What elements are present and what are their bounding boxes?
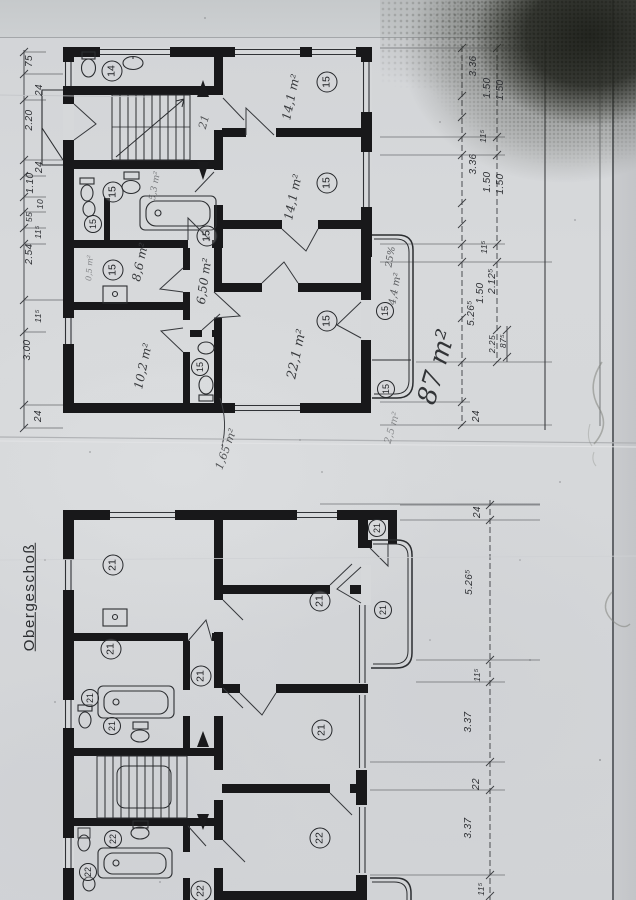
room-number-circle: 21 <box>368 519 386 537</box>
floorplan-linework <box>0 0 636 900</box>
room-number-circle: 15 <box>317 173 338 194</box>
handwritten-note: 21 <box>197 114 211 130</box>
dim-label: 24 <box>35 84 45 96</box>
room-number: 15 <box>85 216 101 232</box>
scanned-floorplan-page: Obergeschoß 14 15 15 15 15 15 15 15 15 1… <box>0 0 636 900</box>
dim-label: 55 <box>25 212 34 222</box>
room-number-circle: 15 <box>317 311 338 332</box>
room-number: 15 <box>192 359 208 375</box>
dim-label: 11⁵ <box>480 240 489 254</box>
room-number-circle: 15 <box>84 215 102 233</box>
room-number-circle: 22 <box>310 828 331 849</box>
dim-label: 1.50 <box>476 282 486 303</box>
top-plan-walls <box>63 47 372 413</box>
dim-label: 3.36 <box>469 55 479 76</box>
top-plan-stairs <box>112 95 190 160</box>
dim-label: 11⁵ <box>34 309 43 323</box>
room-number-circle: 15 <box>103 260 124 281</box>
dim-label: 11⁵ <box>479 129 488 143</box>
dim-label: 3.00 <box>23 339 33 360</box>
room-number-circle: 21 <box>103 717 121 735</box>
dim-label: 11⁵ <box>477 882 486 896</box>
dim-label: 24 <box>35 161 45 173</box>
room-number-circle: 14 <box>102 61 123 82</box>
room-number-circle: 22 <box>79 863 97 881</box>
room-number: 22 <box>192 882 211 900</box>
room-number-circle: 15 <box>317 72 338 93</box>
dim-label: 1.10 <box>26 172 36 193</box>
dim-label: 87⁵ <box>499 334 508 348</box>
room-number-circle: 22 <box>104 830 122 848</box>
room-number: 15 <box>378 381 394 397</box>
room-number: 21 <box>313 721 332 740</box>
room-number: 21 <box>102 640 121 659</box>
room-number-circle: 21 <box>101 639 122 660</box>
dim-label: 1.50 <box>483 77 493 98</box>
room-number: 15 <box>318 312 337 331</box>
room-number-circle: 21 <box>191 666 212 687</box>
room-number: 21 <box>311 592 330 611</box>
bottom-plan-stairs <box>97 756 187 818</box>
room-number: 15 <box>377 303 393 319</box>
room-number: 15 <box>104 183 123 202</box>
top-plan-porch <box>42 90 63 165</box>
dim-label: 10 <box>36 199 45 209</box>
dim-label: 11⁵ <box>473 668 482 682</box>
room-number-circle: 21 <box>310 591 331 612</box>
dim-label: 2.12⁵ <box>488 268 498 294</box>
room-number-circle: 15 <box>377 380 395 398</box>
room-number-circle: 22 <box>191 881 212 900</box>
dim-label: 24 <box>472 410 482 422</box>
pencil-marks <box>588 362 630 627</box>
dim-label: 2.25 <box>488 335 497 353</box>
room-number-circle: 21 <box>81 689 99 707</box>
room-number: 22 <box>311 829 330 848</box>
dim-label: 3.37 <box>464 817 474 838</box>
room-number: 21 <box>192 667 211 686</box>
room-number: 15 <box>198 227 217 246</box>
room-number-circle: 15 <box>191 358 209 376</box>
room-number: 21 <box>104 556 123 575</box>
dim-label: 1.50 <box>496 79 506 100</box>
dim-label: 22 <box>472 778 482 790</box>
room-number-circle: 21 <box>103 555 124 576</box>
dim-label: 5.26⁵ <box>465 569 475 595</box>
bottom-plan-entry-arrows <box>197 731 209 830</box>
dim-label: 1.50 <box>496 173 506 194</box>
room-number: 21 <box>104 718 120 734</box>
room-number: 21 <box>369 520 385 536</box>
dim-label: 5.26⁵ <box>467 300 477 326</box>
dim-label: 24 <box>34 410 44 422</box>
room-number: 15 <box>318 174 337 193</box>
room-number-circle: 15 <box>103 182 124 203</box>
room-number: 22 <box>80 864 96 880</box>
room-number-circle: 15 <box>197 226 218 247</box>
dim-label: 24 <box>473 506 483 518</box>
dim-label: 2.54 <box>25 243 35 264</box>
room-number: 21 <box>375 602 391 618</box>
bottom-plan-balcony <box>370 540 412 900</box>
dim-label: 11⁵ <box>34 225 43 239</box>
dim-label: 75 <box>25 55 35 67</box>
room-number: 22 <box>105 831 121 847</box>
dim-label: 1.50 <box>483 171 493 192</box>
dim-label: 2.20 <box>25 109 35 130</box>
room-number-circle: 21 <box>312 720 333 741</box>
floor-title: Obergeschoß <box>22 543 39 651</box>
room-number: 15 <box>104 261 123 280</box>
room-number: 15 <box>318 73 337 92</box>
room-number-circle: 21 <box>374 601 392 619</box>
room-number: 14 <box>103 62 122 81</box>
room-number: 21 <box>82 690 98 706</box>
dim-label: 3.36 <box>469 153 479 174</box>
dim-label: 3.37 <box>464 711 474 732</box>
